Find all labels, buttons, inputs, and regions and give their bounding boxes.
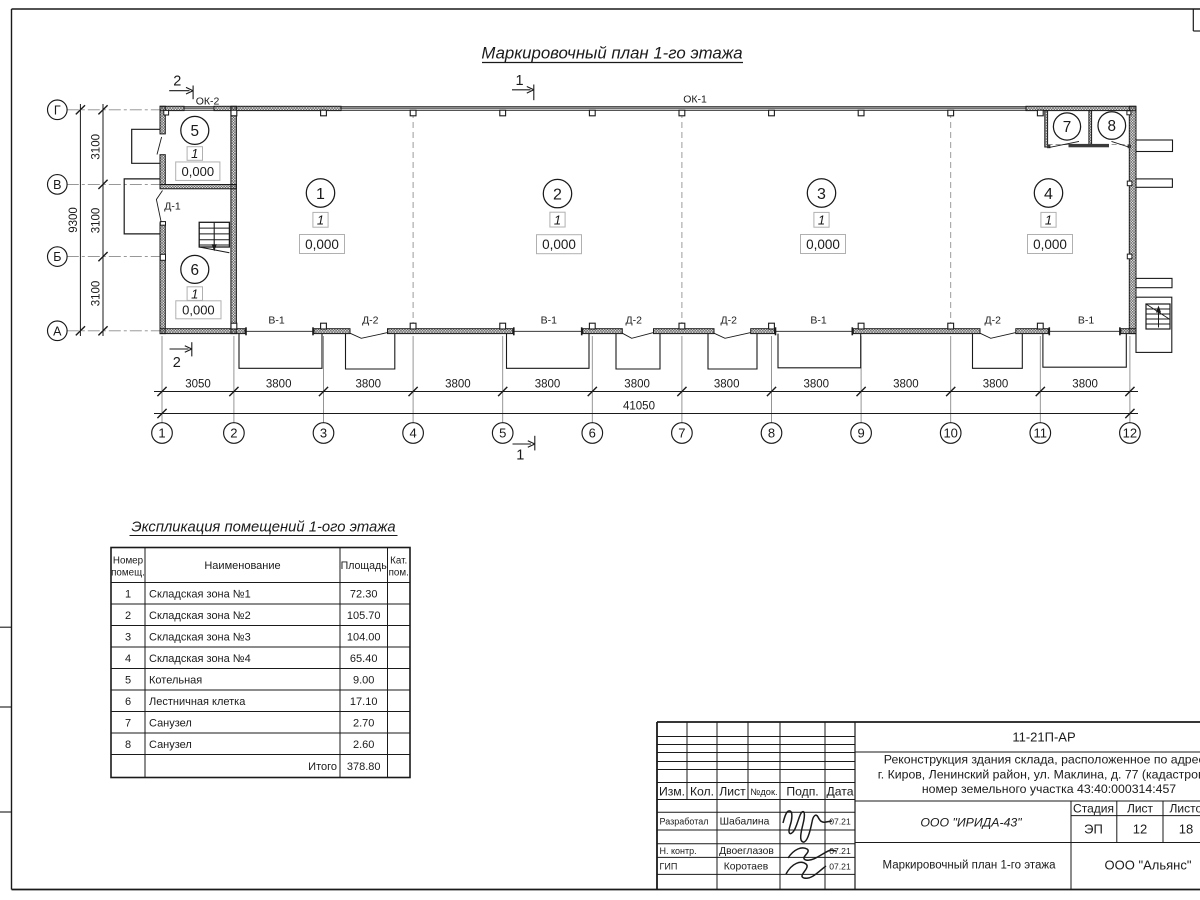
svg-text:3800: 3800: [714, 379, 740, 391]
svg-text:2: 2: [173, 355, 181, 371]
svg-text:3100: 3100: [91, 281, 103, 307]
svg-text:Складская зона №4: Складская зона №4: [149, 653, 251, 665]
svg-text:г. Киров, Ленинский район, ул.: г. Киров, Ленинский район, ул. Маклина, …: [878, 768, 1200, 782]
svg-text:378.80: 378.80: [347, 761, 381, 773]
svg-text:72.30: 72.30: [350, 588, 378, 600]
svg-text:Н. контр.: Н. контр.: [660, 846, 697, 856]
svg-text:12: 12: [1133, 822, 1147, 837]
svg-text:7: 7: [125, 717, 131, 729]
svg-text:Маркировочный план 1-го этажа: Маркировочный план 1-го этажа: [883, 860, 1057, 872]
svg-text:4: 4: [409, 426, 416, 441]
svg-text:9300: 9300: [68, 207, 80, 233]
svg-text:1: 1: [191, 146, 198, 161]
svg-text:3800: 3800: [1072, 379, 1098, 391]
svg-text:Разработал: Разработал: [660, 817, 709, 827]
svg-text:1: 1: [125, 588, 131, 600]
svg-text:Г: Г: [54, 103, 61, 117]
svg-text:3100: 3100: [91, 208, 103, 234]
svg-text:Складская зона №3: Складская зона №3: [149, 631, 251, 643]
svg-text:1: 1: [515, 73, 523, 89]
svg-text:А: А: [53, 324, 62, 338]
svg-text:3050: 3050: [185, 379, 211, 391]
svg-text:1: 1: [191, 286, 198, 301]
svg-text:№док.: №док.: [750, 787, 777, 797]
svg-text:1: 1: [316, 186, 325, 203]
svg-text:17.10: 17.10: [350, 696, 378, 708]
svg-text:В: В: [53, 178, 61, 192]
svg-text:ГИП: ГИП: [660, 862, 678, 872]
svg-text:9.00: 9.00: [353, 674, 374, 686]
svg-text:2.70: 2.70: [353, 717, 374, 729]
svg-text:0,000: 0,000: [542, 237, 576, 252]
svg-text:6: 6: [125, 696, 131, 708]
svg-text:6: 6: [191, 262, 200, 279]
svg-text:Листов: Листов: [1170, 802, 1200, 816]
svg-text:В-1: В-1: [810, 315, 827, 327]
svg-text:5: 5: [191, 123, 200, 140]
svg-text:18: 18: [1179, 822, 1193, 837]
svg-text:2: 2: [173, 73, 181, 89]
svg-text:7: 7: [1063, 119, 1072, 136]
svg-text:Подп.: Подп.: [786, 785, 818, 799]
svg-text:10: 10: [943, 426, 957, 441]
svg-text:07.21: 07.21: [829, 862, 851, 872]
svg-text:Стадия: Стадия: [1073, 802, 1114, 816]
svg-text:11: 11: [1034, 426, 1048, 441]
svg-text:4: 4: [125, 653, 131, 665]
svg-text:Наименование: Наименование: [204, 560, 280, 572]
svg-text:3100: 3100: [91, 134, 103, 160]
svg-text:Шабалина: Шабалина: [720, 816, 770, 828]
svg-text:Санузел: Санузел: [149, 717, 192, 729]
svg-text:0,000: 0,000: [182, 302, 215, 317]
svg-text:3800: 3800: [804, 379, 830, 391]
svg-text:2: 2: [230, 426, 237, 441]
svg-text:Двоеглазов: Двоеглазов: [719, 846, 774, 857]
svg-text:9: 9: [857, 426, 864, 441]
svg-text:Экспликация помещений 1-ого эт: Экспликация помещений 1-ого этажа: [131, 520, 395, 536]
svg-text:Лист: Лист: [1127, 802, 1154, 816]
svg-text:Кол.: Кол.: [690, 785, 714, 799]
svg-text:3800: 3800: [445, 379, 471, 391]
svg-text:Д-2: Д-2: [720, 315, 737, 327]
svg-text:Кат.: Кат.: [390, 556, 407, 567]
svg-text:Изм.: Изм.: [659, 785, 685, 799]
svg-text:1: 1: [317, 213, 324, 228]
svg-text:1: 1: [818, 213, 825, 228]
svg-text:Лист: Лист: [719, 785, 746, 799]
svg-text:104.00: 104.00: [347, 631, 381, 643]
svg-text:Лестничная клетка: Лестничная клетка: [149, 696, 246, 708]
svg-text:41050: 41050: [623, 401, 655, 413]
svg-text:3800: 3800: [983, 379, 1009, 391]
svg-text:3800: 3800: [535, 379, 561, 391]
svg-text:Маркировочный план 1-го этажа: Маркировочный план 1-го этажа: [481, 44, 742, 63]
svg-text:3: 3: [817, 186, 826, 203]
svg-text:0,000: 0,000: [806, 237, 840, 252]
svg-text:3800: 3800: [356, 379, 382, 391]
svg-text:пом.: пом.: [389, 568, 409, 579]
svg-text:1: 1: [516, 447, 524, 463]
svg-text:Д-1: Д-1: [164, 201, 181, 213]
svg-text:Складская зона №1: Складская зона №1: [149, 588, 251, 600]
svg-text:0,000: 0,000: [182, 164, 215, 179]
svg-text:Б: Б: [53, 250, 61, 264]
svg-text:Котельная: Котельная: [149, 674, 202, 686]
svg-text:номер земельного участка 43:40: номер земельного участка 43:40:000314:45…: [922, 782, 1176, 796]
svg-text:3: 3: [125, 631, 131, 643]
svg-text:6: 6: [589, 426, 596, 441]
svg-text:Площадь: Площадь: [341, 560, 388, 572]
svg-text:8: 8: [768, 426, 775, 441]
svg-text:105.70: 105.70: [347, 610, 381, 622]
svg-text:1: 1: [554, 212, 561, 227]
svg-text:2.60: 2.60: [353, 739, 374, 751]
svg-text:3800: 3800: [266, 379, 292, 391]
svg-text:Дата: Дата: [827, 785, 854, 799]
svg-text:5: 5: [499, 426, 506, 441]
svg-text:В-1: В-1: [1078, 315, 1095, 327]
svg-text:12: 12: [1123, 426, 1137, 441]
svg-text:ОК-2: ОК-2: [196, 96, 220, 108]
svg-text:ООО "ИРИДА-43": ООО "ИРИДА-43": [920, 816, 1022, 830]
svg-text:4: 4: [1044, 186, 1053, 203]
svg-text:0,000: 0,000: [1033, 237, 1067, 252]
svg-text:8: 8: [1108, 118, 1117, 135]
svg-text:1: 1: [158, 426, 165, 441]
svg-text:Д-2: Д-2: [984, 315, 1001, 327]
svg-text:2: 2: [553, 186, 562, 203]
svg-text:5: 5: [125, 674, 131, 686]
svg-text:Реконструкция здания склада, р: Реконструкция здания склада, расположенн…: [884, 753, 1200, 767]
svg-text:11-21П-АР: 11-21П-АР: [1012, 730, 1075, 745]
svg-text:Д-2: Д-2: [362, 315, 379, 327]
svg-text:07.21: 07.21: [829, 817, 851, 827]
svg-text:ЭП: ЭП: [1084, 822, 1103, 837]
svg-text:В-1: В-1: [268, 315, 285, 327]
svg-text:Д-2: Д-2: [625, 315, 642, 327]
svg-text:65.40: 65.40: [350, 653, 378, 665]
svg-text:2: 2: [125, 610, 131, 622]
svg-text:7: 7: [678, 426, 685, 441]
svg-text:помещ.: помещ.: [111, 568, 145, 579]
svg-text:Санузел: Санузел: [149, 739, 192, 751]
svg-text:В-1: В-1: [541, 315, 558, 327]
svg-text:Номер: Номер: [113, 556, 144, 567]
svg-text:Складская зона №2: Складская зона №2: [149, 610, 251, 622]
svg-text:Итого: Итого: [308, 761, 337, 773]
svg-text:07.21: 07.21: [829, 846, 851, 856]
svg-text:ООО "Альянс": ООО "Альянс": [1105, 858, 1192, 873]
svg-text:3800: 3800: [624, 379, 650, 391]
svg-text:3: 3: [320, 426, 327, 441]
svg-text:ОК-1: ОК-1: [683, 94, 707, 106]
svg-text:Коротаев: Коротаев: [724, 862, 769, 873]
svg-text:1: 1: [1045, 213, 1052, 228]
svg-text:3800: 3800: [893, 379, 919, 391]
svg-text:8: 8: [125, 739, 131, 751]
svg-text:0,000: 0,000: [305, 237, 339, 252]
